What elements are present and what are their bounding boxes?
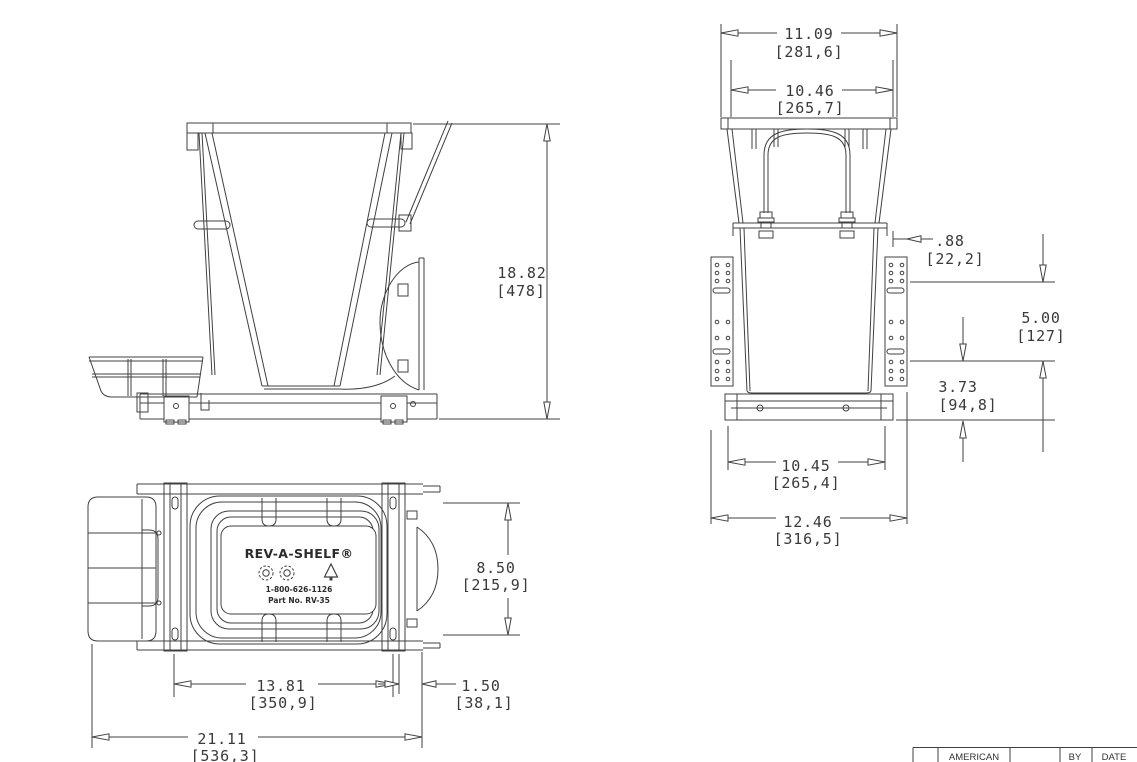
dim-bracket-offset-mm: [22,2] — [926, 250, 985, 268]
dim-side-height-in: 18.82 — [497, 264, 546, 282]
plan-view: REV-A-SHELF® 1-800-626-1126 Part No. RV-… — [88, 483, 530, 762]
dim-front-inner-width-mm: [265,7] — [776, 99, 845, 117]
dim-plan-depth-mm: [215,9] — [462, 576, 531, 594]
dim-upper-height-mm: [127] — [1016, 327, 1065, 345]
dim-bottom-width-mm: [265,4] — [772, 474, 841, 492]
dim-door-offset-mm: [38,1] — [455, 694, 514, 712]
dim-bottom-width: 10.45 [265,4] — [728, 426, 885, 492]
dim-door-offset: 1.50 [38,1] — [378, 652, 514, 748]
container-rim — [187, 123, 412, 150]
dim-front-inner-width-in: 10.46 — [785, 82, 834, 100]
handle-arch — [764, 129, 850, 213]
waste-bucket-front — [727, 129, 891, 393]
dim-side-height-mm: [478] — [496, 282, 545, 300]
dim-lower-height-mm: [94,8] — [939, 396, 998, 414]
title-block-company: AMERICAN — [949, 752, 999, 762]
dim-bracket-offset-in: .88 — [935, 232, 965, 250]
dim-overall-width-in: 12.46 — [783, 513, 832, 531]
title-block-by: BY — [1069, 752, 1082, 762]
title-block-date: DATE — [1102, 752, 1127, 762]
mounting-bracket-left — [711, 257, 733, 386]
dim-side-height: 18.82 [478] — [413, 124, 560, 419]
dim-overall-width-mm: [316,5] — [774, 530, 843, 548]
dim-door-offset-in: 1.50 — [461, 677, 500, 695]
dim-front-top-width-mm: [281,6] — [775, 43, 844, 61]
base-slide-side — [137, 393, 437, 424]
dim-front-inner-width: 10.46 [265,7] — [731, 82, 893, 117]
door-bracket-plan — [407, 511, 438, 627]
dim-overall-depth-in: 21.11 — [197, 730, 246, 748]
handle-bolts — [758, 212, 855, 238]
side-elevation-view: 18.82 [478] — [89, 121, 560, 424]
rear-basket-plan — [88, 497, 161, 641]
brand-logo-text: REV-A-SHELF® — [245, 546, 354, 561]
rear-basket-side — [89, 357, 209, 410]
dim-slide-length-mm: [350,9] — [249, 694, 318, 712]
dim-bottom-width-in: 10.45 — [781, 457, 830, 475]
dim-overall-depth-mm: [536,3] — [191, 747, 260, 762]
wire-frame-side — [194, 133, 411, 375]
dim-upper-height-in: 5.00 — [1021, 309, 1060, 327]
label-part-number: Part No. RV-35 — [268, 596, 330, 605]
waste-bucket-side — [205, 133, 395, 389]
drawing-sheet: 18.82 [478] — [0, 0, 1137, 762]
dim-slide-length-in: 13.81 — [256, 677, 305, 695]
dim-plan-depth: 8.50 [215,9] — [443, 503, 530, 635]
title-block: AMERICAN BY DATE — [913, 748, 1137, 762]
base-frame-front — [725, 394, 893, 420]
dim-lower-height-in: 3.73 — [938, 378, 977, 396]
mounting-bracket-right — [885, 257, 907, 386]
cad-drawing: 18.82 [478] — [0, 0, 1137, 762]
lid-rod — [406, 121, 452, 224]
label-phone: 1-800-626-1126 — [266, 585, 333, 594]
dim-front-top-width-in: 11.09 — [784, 25, 833, 43]
dim-slide-length: 13.81 [350,9] — [174, 654, 393, 712]
dim-plan-depth-in: 8.50 — [476, 559, 515, 577]
front-elevation-view: 11.09 [281,6] 10.46 [265,7] .88 [22,2] 5… — [711, 24, 1066, 548]
